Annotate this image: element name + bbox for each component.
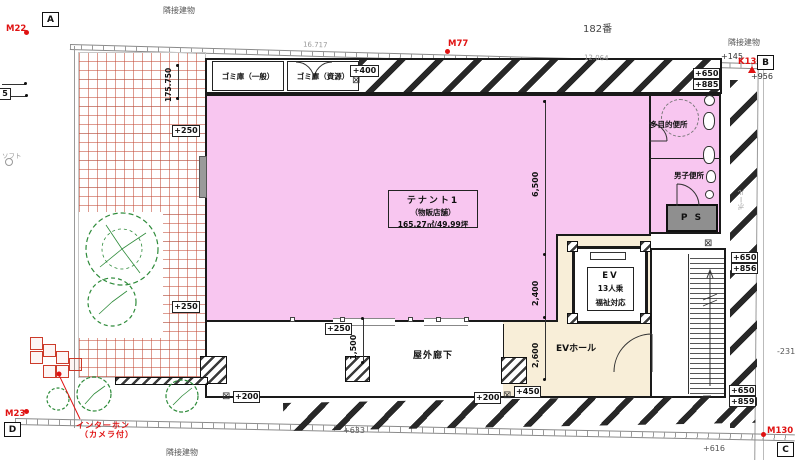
level-956: +956: [751, 72, 773, 81]
marker-m77-dot: [445, 49, 450, 54]
marker-m22-dot: [24, 30, 29, 35]
pole-note: ポール: [736, 184, 746, 210]
column: [501, 357, 527, 384]
tenant-label-line2: （物販店舗）: [389, 207, 477, 218]
marker-m23: M23: [5, 409, 25, 419]
garden-low-wall: [115, 377, 208, 385]
marker-m130: M130: [767, 426, 793, 436]
ev-shaft-corner: [567, 313, 578, 324]
red-tile: [30, 337, 43, 350]
crossbox-symbol: ⊠: [222, 392, 230, 402]
dim-dot: [361, 361, 364, 364]
ev-label-line1: EV: [588, 271, 633, 281]
crossbox-symbol: ⊠: [352, 76, 360, 86]
ev-shaft-corner: [640, 313, 651, 324]
stair-treads: [690, 254, 724, 394]
dim-dot: [543, 253, 546, 256]
soft-note-circle: [5, 158, 13, 166]
corridor-post: [290, 317, 295, 322]
marker-k130-triangle: [748, 66, 756, 73]
tenant-label-line3: 165.27㎡/49.99坪: [389, 219, 477, 230]
dim-dot: [24, 82, 27, 85]
colonnade-hatch: [359, 60, 720, 92]
tenant-label-box: テナント1 （物販店舗） 165.27㎡/49.99坪: [388, 190, 478, 228]
dim-2400: 2,400: [531, 268, 540, 306]
level-250-corridor: +250: [325, 323, 352, 335]
section-marker-d: D: [4, 422, 21, 437]
entrance-door-panel: [199, 156, 207, 198]
ev-counterweight: [590, 252, 626, 260]
dim-line-175: [178, 64, 179, 100]
tenant-label-line1: テナント1: [389, 193, 477, 206]
red-tile: [56, 351, 69, 364]
planting-bed: [79, 212, 163, 338]
red-tile: [69, 358, 82, 371]
storefront-opening: [424, 318, 468, 326]
pipe-space-box: P S: [666, 204, 718, 232]
toilet-fixture: [703, 146, 715, 164]
red-tile: [43, 365, 56, 378]
garbage-general-label: ゴミ庫（一般）: [215, 71, 281, 82]
section-marker-c: C: [777, 442, 794, 457]
garbage-recycle-label: ゴミ庫（資源）: [290, 71, 356, 82]
section-marker-a: A: [42, 12, 59, 27]
level-minus-231: -231: [777, 347, 795, 356]
dim-dot: [25, 94, 28, 97]
corridor-post: [340, 317, 345, 322]
dim-6500: 6,500: [531, 155, 540, 197]
mens-toilet-label: 男子便所: [674, 170, 704, 181]
ev-label-line2: 13人乗: [588, 283, 633, 294]
level-616: +616: [703, 444, 725, 453]
red-tile: [30, 351, 43, 364]
leader-line-5: [2, 84, 26, 85]
marker-m130-dot: [761, 432, 766, 437]
lot-number: 182番: [583, 20, 612, 35]
level-250-left-bottom: +250: [172, 301, 200, 313]
corridor-post: [436, 317, 441, 322]
floor-plan: EV 13人乗 福祉対応 P S: [0, 0, 800, 466]
ev-shaft-corner: [567, 241, 578, 252]
dim-line-vertical: [545, 100, 546, 380]
dim-dot: [543, 316, 546, 319]
section-marker-b: B: [757, 55, 774, 70]
dim-2600: 2,600: [531, 330, 540, 368]
crossbox-symbol: ⊠: [503, 391, 511, 401]
marker-m77: M77: [448, 39, 468, 49]
pipe-space-label: P S: [681, 213, 703, 223]
level-5-partial: 5: [0, 88, 11, 100]
dim-dot: [176, 97, 179, 100]
ev-shaft-corner: [640, 241, 651, 252]
neighbor-top-left: 隣接建物: [163, 5, 195, 16]
corridor-post: [464, 317, 469, 322]
multi-toilet-label: 多目的便所: [650, 119, 688, 130]
level-856-mid: +856: [731, 263, 758, 274]
dim-dot: [176, 64, 179, 67]
dim-dot: [543, 378, 546, 381]
dim-dot: [361, 317, 364, 320]
neighbor-top-right: 隣接建物: [728, 37, 760, 48]
crossbox-symbol: ⊠: [704, 239, 712, 249]
toilet-fixture: [703, 112, 715, 130]
neighbor-bottom-left: 隣接建物: [166, 447, 198, 458]
level-450: +450: [514, 386, 541, 398]
red-tile: [56, 365, 69, 378]
ev-label-box: EV 13人乗 福祉対応: [587, 267, 634, 311]
corridor-post: [408, 317, 413, 322]
level-885-top: +885: [693, 79, 720, 90]
level-650-bottom: +650: [729, 385, 756, 396]
ev-label-line3: 福祉対応: [588, 297, 633, 308]
level-650-top: +650: [693, 68, 720, 79]
dim-175750: 175.750: [164, 62, 173, 102]
marker-m23-dot: [24, 409, 29, 414]
level-859-bottom: +859: [729, 396, 756, 407]
intercom-leader: [57, 372, 81, 420]
site-boundary-right-outer: [763, 60, 764, 460]
intercom-note-line2: （カメラ付）: [80, 429, 134, 440]
dim-16717: 16.717: [303, 41, 328, 50]
dim-dot: [543, 100, 546, 103]
sink-fixture: [705, 190, 714, 199]
level-650-mid: +650: [731, 252, 758, 263]
level-200-left: +200: [233, 391, 260, 403]
ev-hall-label: EVホール: [556, 341, 596, 354]
wheelchair-turning-circle: [661, 99, 699, 137]
stair-rail: [688, 254, 689, 394]
urinal-fixture: [706, 170, 716, 183]
dim-12064: 12.064: [584, 54, 609, 63]
dim-line-1500: [363, 318, 364, 364]
red-tile: [43, 344, 56, 357]
level-633: +633: [343, 426, 365, 435]
level-200-right: +200: [474, 392, 501, 404]
sink-fixture: [704, 95, 715, 106]
level-250-left-top: +250: [172, 125, 200, 137]
outdoor-corridor-label: 屋外廊下: [413, 348, 453, 361]
